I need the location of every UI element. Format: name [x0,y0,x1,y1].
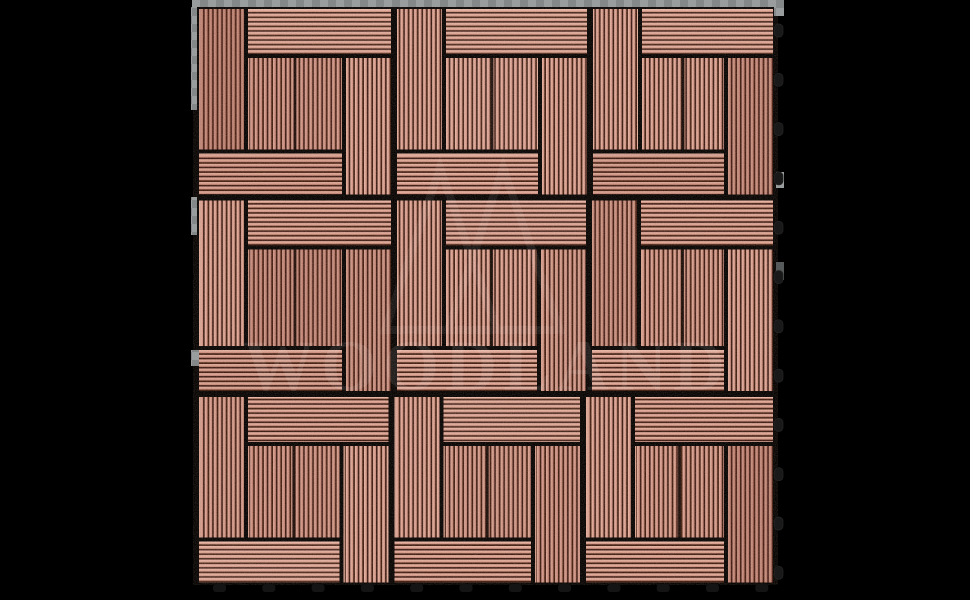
svg-text:WOODLAND: WOODLAND [243,326,731,406]
